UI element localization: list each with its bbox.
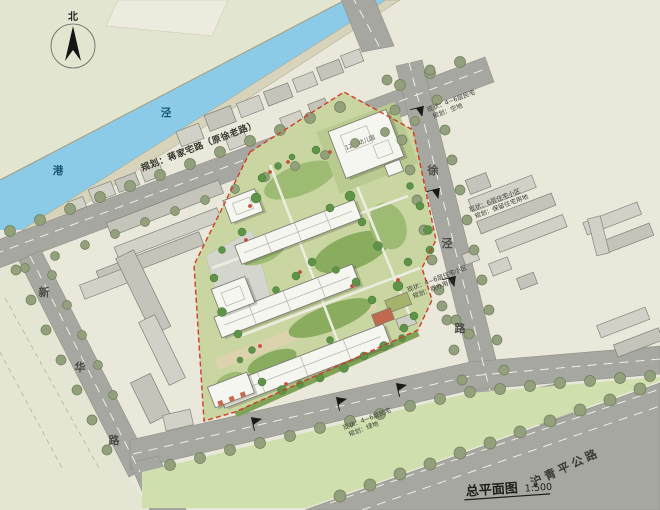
master-plan-canvas: 12班幼儿园 北: [0, 0, 660, 510]
east-road-char-2: 泾: [442, 237, 453, 250]
west-road-char-1: 新: [39, 285, 50, 299]
river-name-char-2: 港: [53, 164, 64, 177]
west-road-char-2: 华: [75, 360, 86, 374]
west-road-char-3: 路: [109, 433, 121, 447]
east-road-char-1: 徐: [427, 163, 439, 177]
river-name-char-1: 泾: [161, 106, 172, 119]
north-label: 北: [68, 10, 78, 23]
drawing-scale: 1:500: [524, 482, 552, 495]
east-road-char-3: 路: [455, 321, 467, 335]
site-plan-drawing: 12班幼儿园 北: [0, 0, 660, 510]
